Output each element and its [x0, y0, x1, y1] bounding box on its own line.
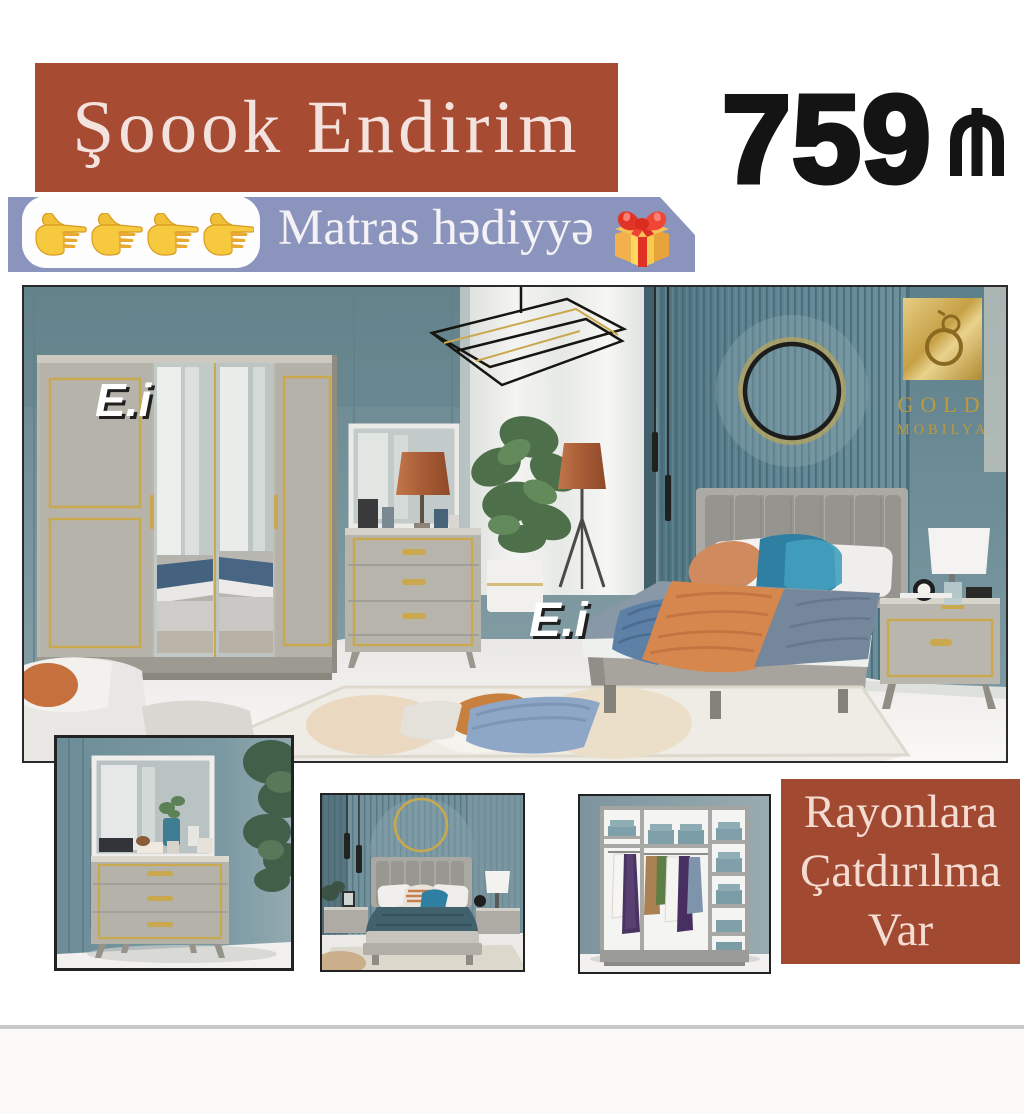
svg-text:E.i: E.i [95, 374, 152, 426]
svg-text:MOBILYA: MOBILYA [897, 422, 990, 438]
svg-text:E.i: E.i [529, 594, 589, 647]
svg-text:GOLD: GOLD [897, 392, 986, 417]
